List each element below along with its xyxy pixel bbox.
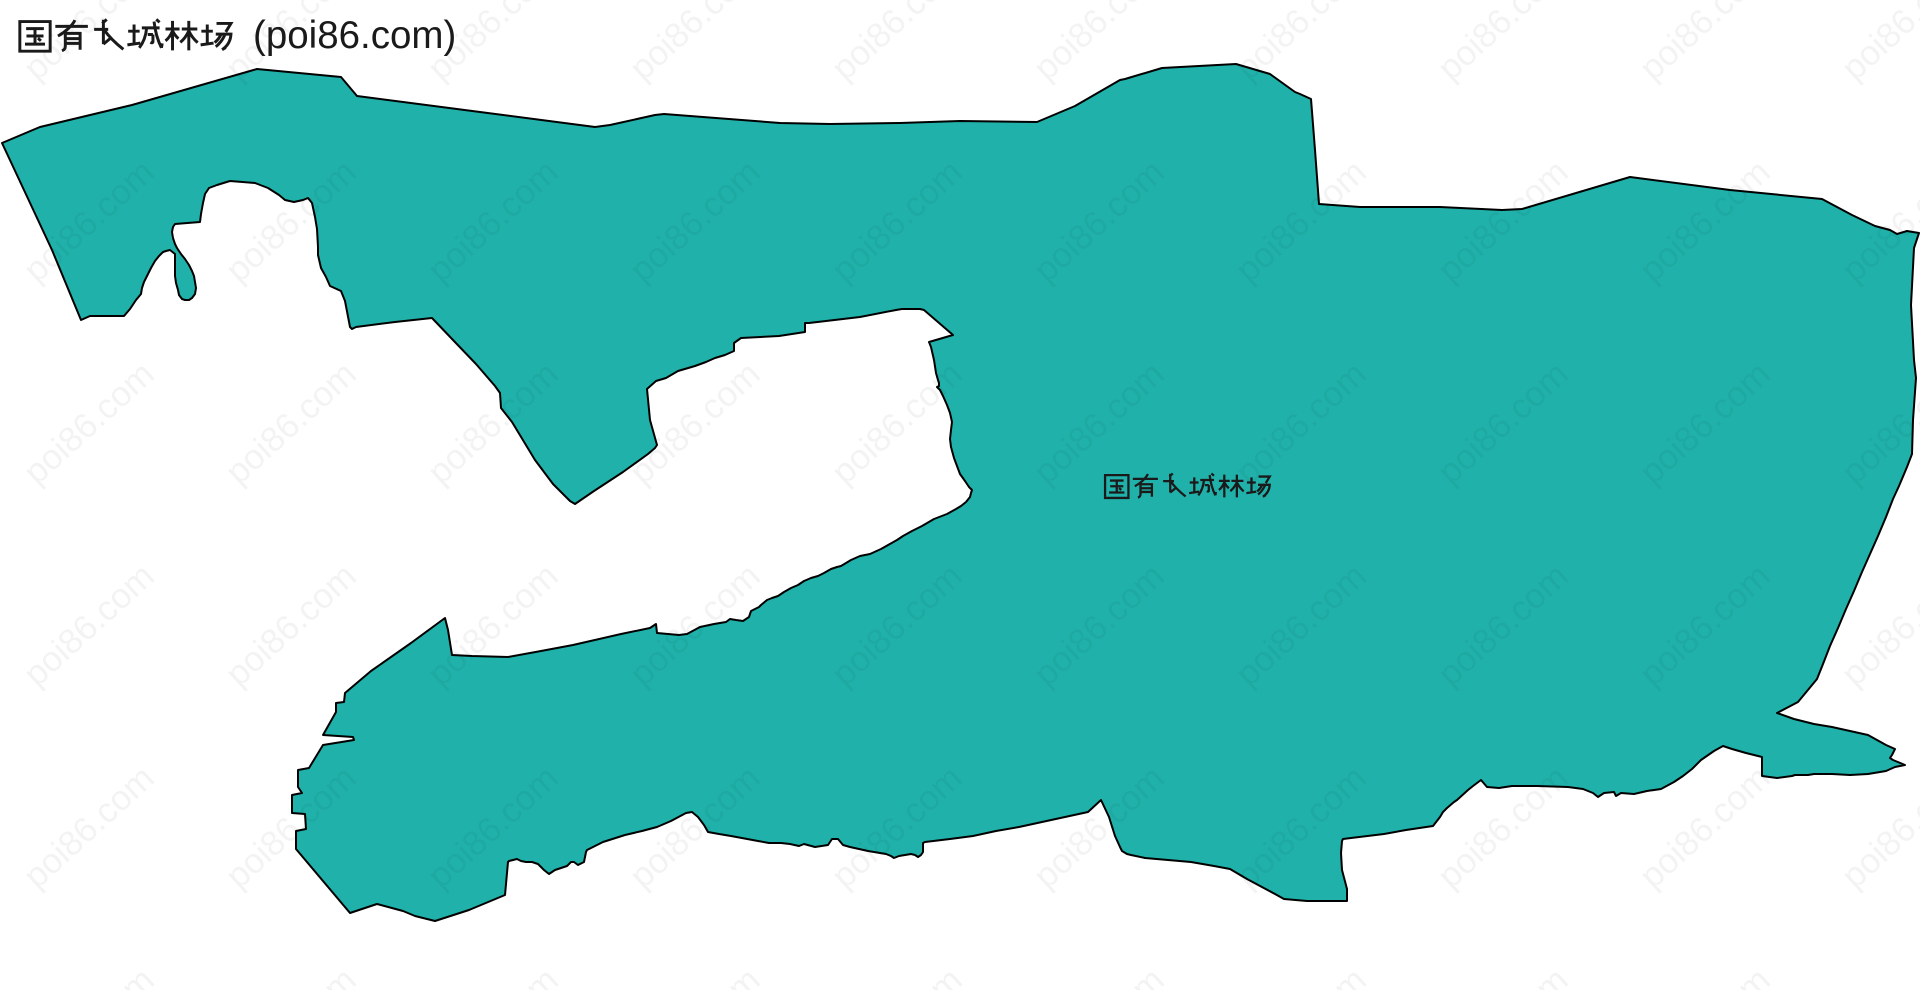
svg-text:(poi86.com): (poi86.com): [253, 14, 456, 57]
